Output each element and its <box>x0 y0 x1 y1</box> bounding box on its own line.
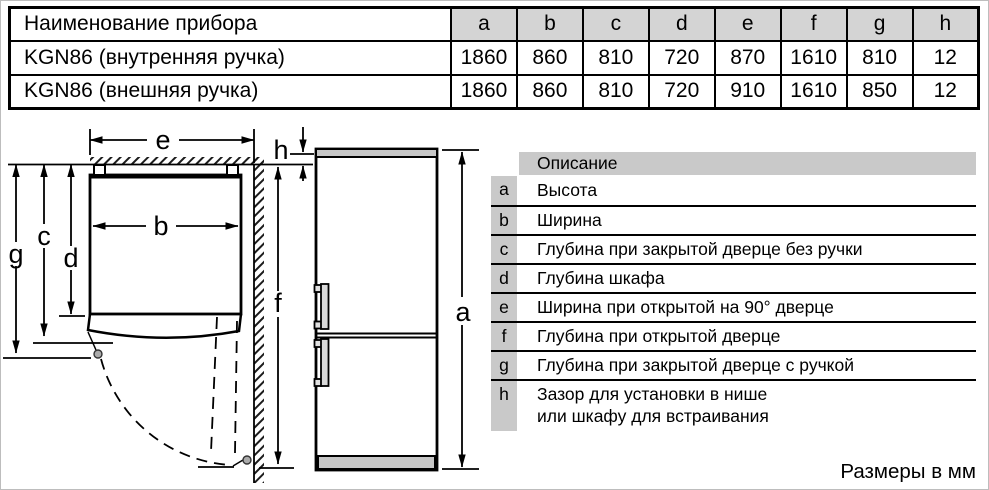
legend-desc-line2: или шкафу для встраивания <box>537 406 769 428</box>
legend-key: e <box>491 294 517 321</box>
dim-value: 1860 <box>451 41 517 75</box>
handle-pivot-open <box>243 456 251 464</box>
dim-d: d <box>59 165 85 317</box>
top-view-cabinet <box>88 165 241 350</box>
legend-row-c: c Глубина при закрытой дверце без ручки <box>491 234 976 263</box>
legend-desc: Ширина при открытой на 90° дверце <box>519 294 976 321</box>
door-open-projection <box>94 317 251 467</box>
dim-label-g: g <box>8 239 23 269</box>
legend-row-e: e Ширина при открытой на 90° дверце <box>491 292 976 321</box>
page: Наименование прибора a b c d e f g h KGN… <box>0 0 989 490</box>
hinge-left <box>94 165 105 175</box>
legend-row-b: b Ширина <box>491 205 976 234</box>
dim-value: 1860 <box>451 75 517 109</box>
door-swing-arc <box>101 359 230 465</box>
dim-value: 1610 <box>781 75 847 109</box>
dim-value: 910 <box>715 75 781 109</box>
legend-header: Описание <box>519 152 976 175</box>
dim-header-d: d <box>649 8 715 41</box>
legend-row-g: g Глубина при закрытой дверце с ручкой <box>491 350 976 379</box>
dim-value: 12 <box>913 41 979 75</box>
legend-row-f: f Глубина при открытой дверце <box>491 321 976 350</box>
dim-value: 860 <box>517 75 583 109</box>
dim-header-b: b <box>517 8 583 41</box>
model-row: KGN86 (внешняя ручка) 1860 860 810 720 9… <box>10 75 979 109</box>
dim-label-d: d <box>63 243 78 273</box>
dim-header-f: f <box>781 8 847 41</box>
door-closed <box>88 314 241 338</box>
model-name: KGN86 (внешняя ручка) <box>10 75 452 109</box>
dim-label-e: e <box>155 125 170 155</box>
legend-desc: Глубина при закрытой дверце с ручкой <box>519 352 976 379</box>
legend-row-d: d Глубина шкафа <box>491 263 976 292</box>
dim-f: f <box>259 167 294 468</box>
legend-desc: Глубина шкафа <box>519 265 976 292</box>
legend-desc: Высота <box>519 176 976 205</box>
legend-key: f <box>491 323 517 350</box>
legend-desc: Зазор для установки в нише или шкафу для… <box>519 381 976 431</box>
dimension-drawing: e h b d c <box>1 119 501 490</box>
legend-desc-line1: Зазор для установки в нише <box>537 384 767 406</box>
dim-value: 860 <box>517 41 583 75</box>
legend-key: b <box>491 207 517 234</box>
dim-label-h: h <box>273 135 288 165</box>
units-note: Размеры в мм <box>701 460 976 484</box>
legend-key: a <box>491 176 517 205</box>
legend-desc: Глубина при закрытой дверце без ручки <box>519 236 976 263</box>
dim-value: 12 <box>913 75 979 109</box>
legend-table: Описание a Высота b Ширина c Глубина при… <box>491 152 976 431</box>
legend-row-h: h Зазор для установки в нише или шкафу д… <box>491 379 976 431</box>
dim-value: 870 <box>715 41 781 75</box>
legend-desc: Глубина при открытой дверце <box>519 323 976 350</box>
top-panel <box>316 149 437 157</box>
dim-label-a: a <box>455 297 471 327</box>
dim-label-f: f <box>274 288 282 318</box>
dim-value: 720 <box>649 41 715 75</box>
dim-label-c: c <box>37 221 51 251</box>
legend-key: c <box>491 236 517 263</box>
dim-value: 810 <box>583 75 649 109</box>
dim-a: a <box>442 150 479 469</box>
dim-value: 810 <box>847 41 913 75</box>
legend-desc: Ширина <box>519 207 976 234</box>
dim-value: 850 <box>847 75 913 109</box>
legend-header-row: Описание <box>491 152 976 175</box>
handle-pivot-closed <box>94 350 102 358</box>
hinge-right <box>227 165 238 175</box>
legend-key: g <box>491 352 517 379</box>
dim-h: h <box>273 127 314 181</box>
dim-header-h: h <box>913 8 979 41</box>
side-view-appliance <box>315 149 438 470</box>
legend-row-a: a Высота <box>491 176 976 205</box>
dim-value: 1610 <box>781 41 847 75</box>
legend-key: d <box>491 265 517 292</box>
dim-header-g: g <box>847 8 913 41</box>
spec-name-header: Наименование прибора <box>10 8 452 41</box>
model-name: KGN86 (внутренняя ручка) <box>10 41 452 75</box>
dim-header-e: e <box>715 8 781 41</box>
dim-value: 810 <box>583 41 649 75</box>
dim-header-a: a <box>451 8 517 41</box>
dim-label-b: b <box>153 211 168 241</box>
dim-header-c: c <box>583 8 649 41</box>
dim-value: 720 <box>649 75 715 109</box>
spec-table: Наименование прибора a b c d e f g h KGN… <box>8 6 980 110</box>
spec-table-header-row: Наименование прибора a b c d e f g h <box>10 8 979 41</box>
model-row: KGN86 (внутренняя ручка) 1860 860 810 72… <box>10 41 979 75</box>
legend-key: h <box>491 381 517 431</box>
plinth <box>318 456 435 469</box>
